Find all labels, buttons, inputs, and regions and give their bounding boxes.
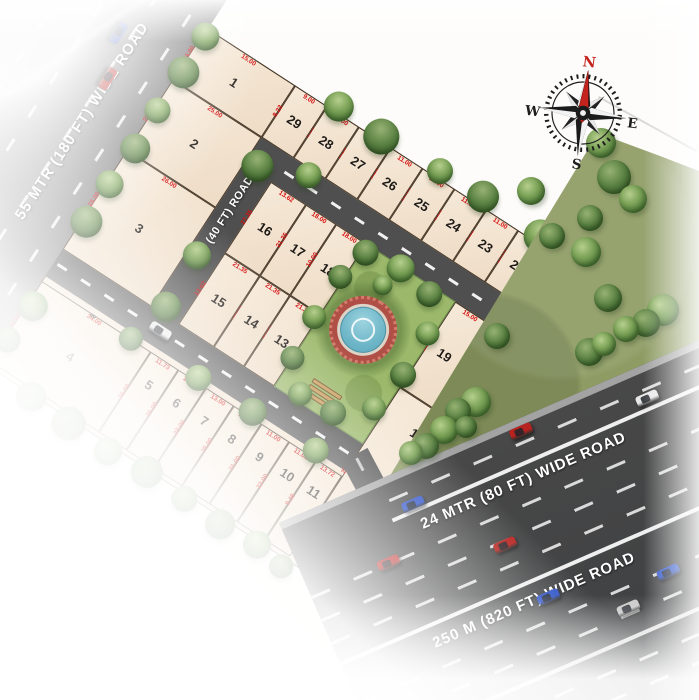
plot-number: 1 (227, 74, 241, 91)
plot-number: 10 (277, 465, 297, 485)
plot-number: 8 (225, 431, 239, 448)
tree-icon (399, 441, 423, 465)
plot-number: 9 (252, 449, 266, 466)
plot-number: 28 (316, 132, 336, 152)
plot-dimension: 9.00 (301, 94, 315, 106)
fountain-inner-ring (347, 313, 380, 346)
car-window (540, 593, 551, 603)
plot-number: 27 (348, 153, 368, 173)
tree-icon (594, 284, 622, 312)
compass-south-label: S (571, 156, 583, 173)
car-window (660, 568, 671, 578)
compass-west-label: W (523, 103, 542, 121)
plot-number: 7 (197, 413, 211, 430)
compass-east-label: E (626, 115, 638, 132)
tree-icon (619, 185, 647, 213)
plot-number: 11 (304, 482, 324, 502)
plot-dimension: 11.00 (396, 155, 413, 169)
car-window (103, 70, 114, 81)
plot-number: 17 (288, 240, 308, 260)
car-window (153, 324, 164, 335)
car-window (405, 500, 416, 510)
compass-rose-icon: N E S W (516, 46, 650, 180)
car-icon (492, 535, 517, 554)
tree-icon (613, 316, 639, 342)
tree-icon (571, 237, 601, 267)
tree-icon (592, 332, 616, 356)
plot-number: 5 (142, 377, 156, 394)
car-window (497, 541, 508, 551)
plot-dimension: 11.00 (491, 217, 508, 231)
plot-number: 25 (412, 194, 432, 214)
car-window (513, 427, 524, 437)
tree-icon (577, 205, 603, 231)
plot-dimension: 15.00 (239, 54, 256, 68)
car-icon (655, 562, 680, 581)
plot-number: 23 (475, 236, 495, 256)
car-window (639, 394, 650, 404)
plot-number: 15 (209, 290, 229, 310)
plot-number: 6 (169, 395, 183, 412)
plot-number: 16 (255, 219, 275, 239)
site-plan-canvas: 55 MTR (180 FT) WIDE ROAD 12 M (40 FT) R… (0, 0, 699, 700)
plot-number: 2 (187, 136, 201, 153)
car-icon (375, 553, 400, 572)
car-window (620, 604, 631, 614)
plot-number: 29 (284, 112, 304, 132)
tree-icon (455, 416, 477, 438)
plot-number: 19 (434, 345, 454, 365)
plot-number: 3 (132, 220, 146, 237)
tree-icon (484, 323, 510, 349)
tree-icon (517, 177, 545, 205)
car-window (381, 559, 392, 569)
plot-number: 24 (444, 215, 464, 235)
plot-number: 14 (242, 311, 262, 331)
car-window (113, 25, 124, 36)
plot-number: 26 (380, 174, 400, 194)
compass-north-label: N (582, 53, 597, 71)
tree-icon (539, 223, 565, 249)
plot-number: 4 (63, 348, 77, 365)
